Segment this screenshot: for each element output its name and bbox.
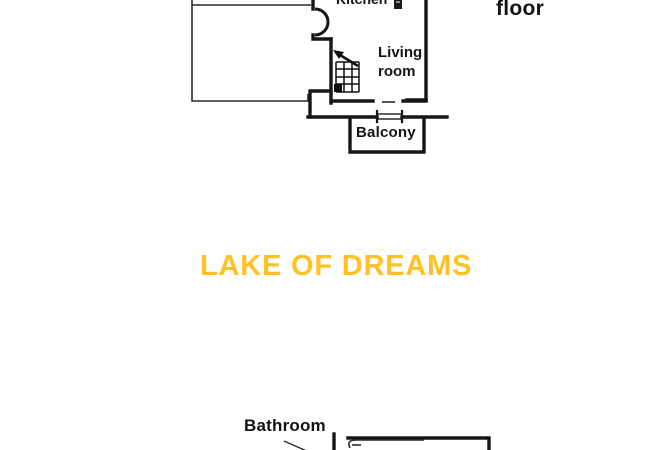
bathroom-label: Bathroom (244, 416, 326, 436)
lower-plan-thick-walls (334, 434, 489, 450)
door-arc-icon (315, 9, 328, 35)
living-room-label: Living room (378, 43, 422, 81)
kitchen-appliance-icon (394, 0, 402, 9)
floorplan-image: Kitchen floor Living room Balcony LAKE O… (0, 0, 650, 450)
kitchen-label: Kitchen (336, 0, 387, 7)
floor-label: floor (496, 0, 544, 21)
bathroom-leader-line (284, 441, 309, 450)
stairs-icon (333, 50, 359, 92)
living-room-label-line2: room (378, 62, 422, 81)
watermark-text: LAKE OF DREAMS (200, 250, 472, 283)
floorplan-linework (0, 0, 650, 450)
balcony-label: Balcony (356, 124, 416, 141)
lower-plan-fixture (349, 440, 424, 448)
living-room-label-line1: Living (378, 43, 422, 62)
